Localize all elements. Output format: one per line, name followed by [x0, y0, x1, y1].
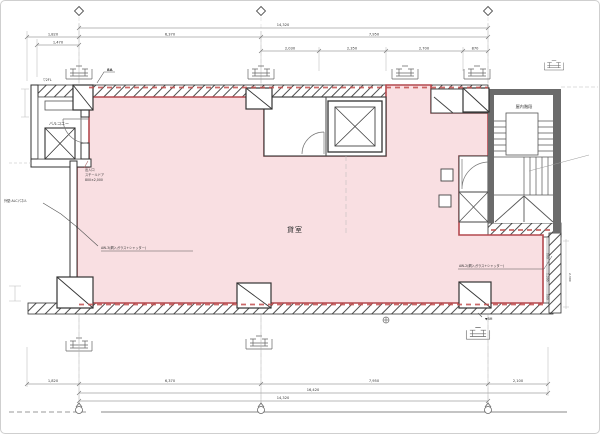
east-wing-wall [549, 233, 561, 313]
dim-bottom-seg1: 1,820 [48, 379, 59, 383]
dim-top-sub4: 870 [472, 47, 480, 51]
window-right-annotation: AW-2(網入ガラス+シャッター) [459, 263, 504, 268]
pipe-shaft [459, 192, 488, 222]
dim-extension-lines-top [27, 23, 488, 83]
dim-bottom-seg2: 6,370 [165, 379, 176, 383]
dim-bottom-seg3: 7,950 [369, 379, 380, 383]
ground-line [9, 403, 567, 414]
dim-side-w1: 500 [546, 253, 550, 259]
window-left-annotation: AW-3(網入ガラス+シャッター) [101, 245, 146, 250]
dim-top-sub3: 2,700 [419, 47, 430, 51]
dimension-labels-bottom: 1,820 6,370 7,950 2,100 16,420 14,320 [48, 379, 524, 400]
dim-top-total: 14,320 [277, 23, 290, 27]
dim-side-height: 2,300 [568, 273, 572, 282]
stair-label: 屋内階段 [516, 103, 534, 110]
dim-top-span-left: 6,370 [165, 33, 176, 37]
room-label: 貸室 [287, 225, 303, 234]
dim-side-w3: 500 [546, 294, 550, 300]
dim-top-sub1: 2,030 [285, 47, 296, 51]
service-core [264, 97, 386, 156]
elevator-shaft [328, 101, 382, 152]
entrance-annotation-line3: 800×2,000 [85, 178, 103, 182]
dim-bottom-total-right: 16,420 [307, 388, 320, 392]
grid-marker-diamonds [75, 7, 493, 16]
survey-mark [383, 317, 389, 323]
dim-extension-lines-bottom [27, 315, 548, 404]
dim-top-left-ext: 1,820 [48, 33, 59, 37]
door-jamb-1 [441, 169, 453, 181]
dim-bottom-seg4: 2,100 [513, 379, 524, 383]
dim-top-sub2: 2,350 [347, 47, 358, 51]
floor-plan-page: 14,320 1,820 6,370 7,950 1,470 2,030 2,3… [0, 0, 600, 434]
door-jamb-2 [439, 195, 451, 207]
balcony-shaft [45, 128, 75, 159]
bench-mark-label: ▼BM [485, 317, 493, 321]
entrance-annotation-line1: 出入口 [85, 167, 95, 172]
balcony-sink [45, 101, 73, 110]
dim-top-small: 1,470 [53, 41, 64, 45]
grid-mark-label: 8A [107, 67, 113, 72]
dim-top-span-right: 7,950 [369, 33, 380, 37]
stairwell [488, 89, 589, 233]
entrance-annotation-line2: スチールドア [85, 172, 104, 177]
level-mark-label: ▽2FL [43, 78, 52, 82]
exterior-wall-annotation: 外壁:ALCパネル [4, 198, 28, 203]
balcony-label: バルコニー [49, 121, 69, 126]
dim-bottom-total: 14,320 [277, 396, 290, 400]
floor-plan-canvas: 14,320 1,820 6,370 7,950 1,470 2,030 2,3… [1, 1, 599, 433]
dim-side-w2: 1,200 [546, 273, 550, 282]
